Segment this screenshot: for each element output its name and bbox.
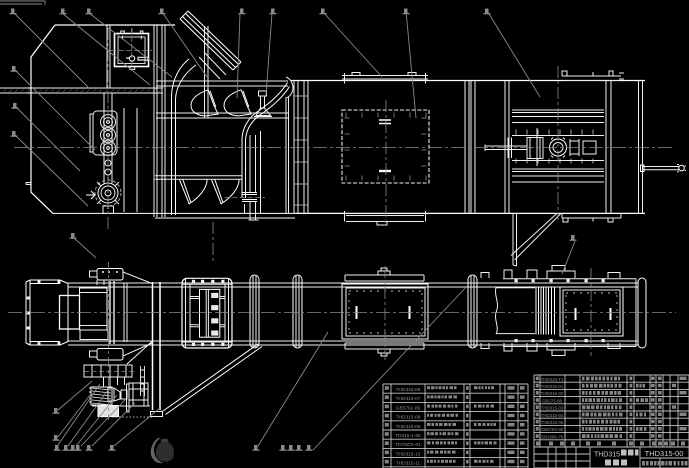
svg-text:GB1096-79: GB1096-79 bbox=[541, 434, 564, 439]
svg-text:THD315-08: THD315-08 bbox=[396, 415, 421, 421]
svg-text:THD315-10: THD315-10 bbox=[396, 451, 421, 457]
svg-text:TD75GX-01: TD75GX-01 bbox=[395, 442, 421, 448]
svg-text:GB5782-86: GB5782-86 bbox=[396, 405, 421, 411]
svg-text:THD315-05: THD315-05 bbox=[541, 420, 564, 425]
svg-text:THD315-04: THD315-04 bbox=[541, 413, 564, 418]
svg-text:THD315-00: THD315-00 bbox=[645, 449, 684, 458]
svg-text:THD315: THD315 bbox=[594, 452, 620, 459]
svg-text:THD315-03: THD315-03 bbox=[541, 406, 564, 411]
svg-text:THD315-T1: THD315-T1 bbox=[541, 377, 564, 382]
svg-text:THD315-07: THD315-07 bbox=[396, 396, 421, 402]
svg-text:TD315-1-06: TD315-1-06 bbox=[395, 433, 421, 439]
svg-text:THD315-02: THD315-02 bbox=[541, 391, 564, 396]
svg-text:THD315-01: THD315-01 bbox=[541, 384, 564, 389]
svg-text:THD315-06: THD315-06 bbox=[396, 387, 421, 393]
svg-text:GB275-88: GB275-88 bbox=[542, 398, 563, 403]
svg-text:THD315-11: THD315-11 bbox=[396, 461, 421, 467]
svg-text:THD315-09: THD315-09 bbox=[396, 424, 421, 430]
svg-text:GB5783-86: GB5783-86 bbox=[541, 427, 564, 432]
